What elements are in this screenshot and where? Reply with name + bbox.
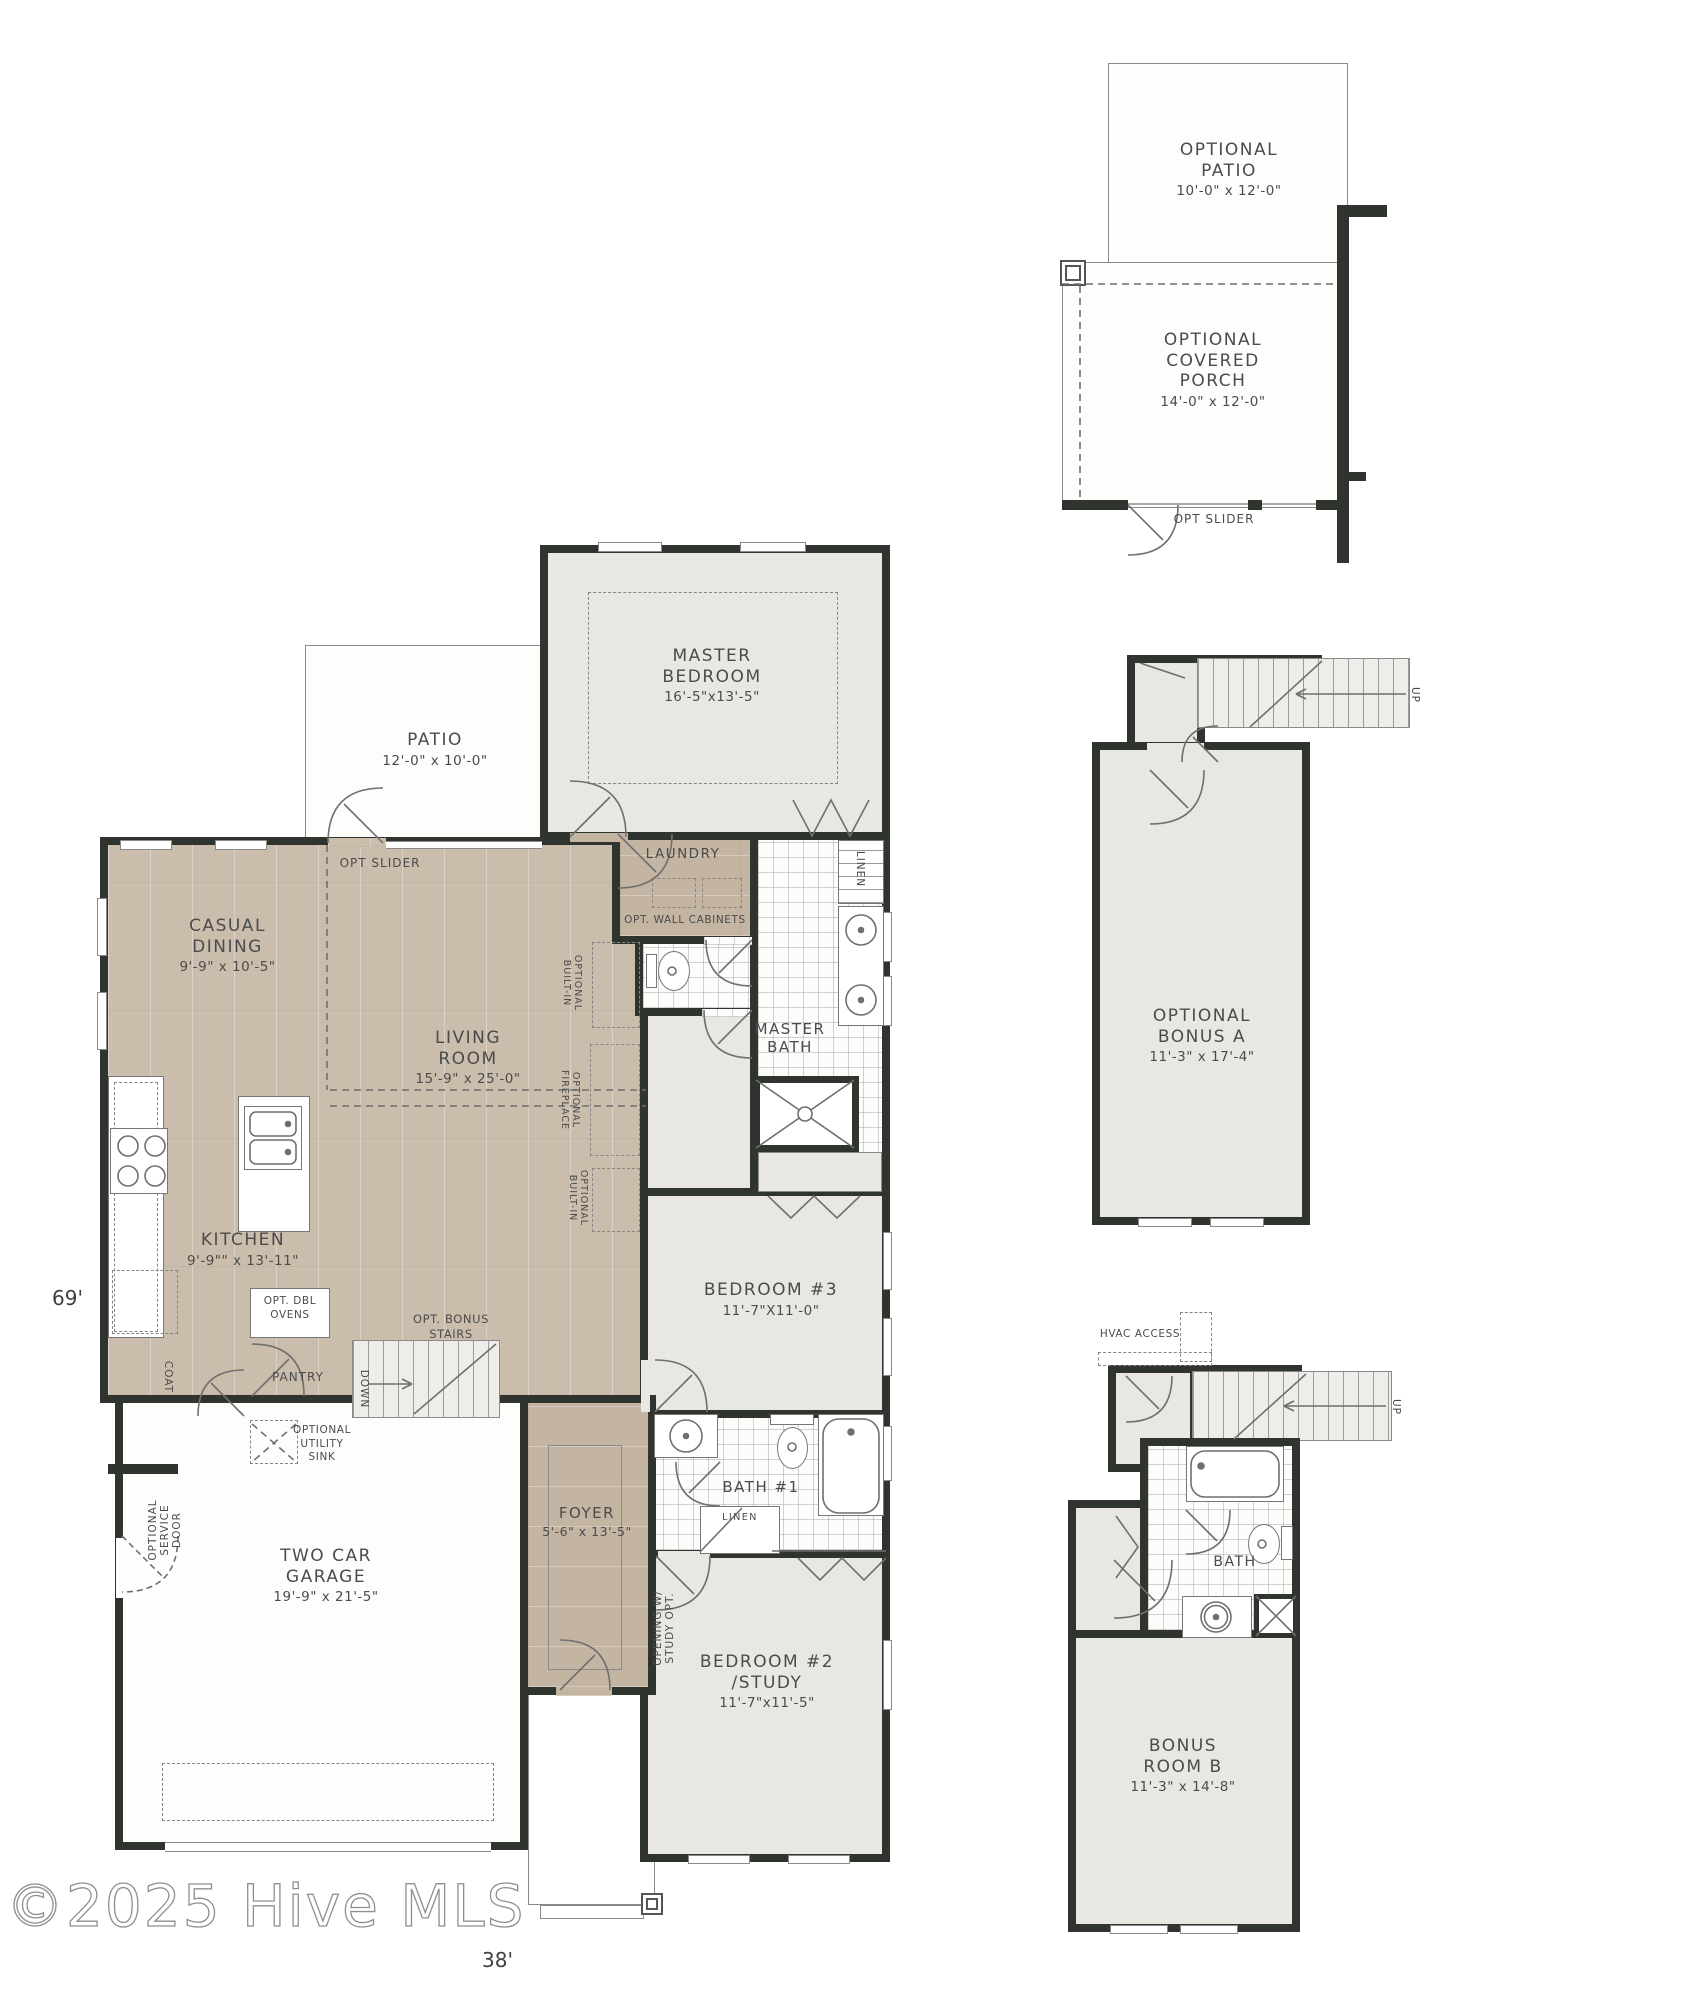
room-label-bonus-bath: BATH — [1192, 1554, 1278, 1571]
toilet-bowl-master — [658, 951, 690, 991]
foyer-inner-outline — [548, 1445, 622, 1670]
bonus-a-landing — [1127, 655, 1205, 750]
label-up-bonus-a: UP — [1409, 680, 1421, 710]
label-pantry: PANTRY — [256, 1370, 340, 1385]
watermark-hive-mls: ©2025 Hive MLS — [6, 1872, 525, 1940]
porch-bottom-wall-c — [1316, 500, 1346, 510]
toilet-tank-bath1 — [770, 1414, 814, 1425]
garage-wall-stub — [108, 1464, 178, 1474]
hvac-dashed-strip — [1098, 1352, 1212, 1366]
room-label-patio: PATIO 12'-0" x 10'-0" — [355, 730, 515, 769]
main-stairs — [352, 1340, 500, 1418]
window — [215, 840, 267, 850]
toilet-tank-bonus — [1281, 1526, 1293, 1560]
room-label-master-bath: MASTER BATH — [742, 1020, 838, 1057]
window — [883, 1232, 892, 1290]
room-label-bonus-b: BONUS ROOM B 11'-3" x 14'-8" — [1092, 1736, 1274, 1796]
front-porch-step — [540, 1905, 644, 1919]
front-porch-post — [641, 1893, 663, 1915]
door-opening — [641, 1360, 650, 1412]
bath1-tub — [818, 1414, 884, 1516]
room-label-bonus-a: OPTIONAL BONUS A 11'-3" x 17'-4" — [1118, 1006, 1286, 1066]
room-label-master-bedroom: MASTER BEDROOM 16'-5"x13'-5" — [627, 646, 797, 706]
door-opening — [556, 1687, 612, 1696]
window — [883, 1640, 892, 1710]
opt-builtin-upper-dashed — [592, 942, 640, 1028]
bonus-b-stairs — [1192, 1371, 1392, 1441]
room-bonus-a — [1092, 742, 1310, 1225]
bonus-vanity — [1182, 1596, 1252, 1638]
toilet-tank-master — [646, 954, 657, 988]
window — [883, 1318, 892, 1376]
window — [740, 542, 806, 552]
utility-sink-dashed — [250, 1420, 298, 1464]
fridge-dashed — [112, 1270, 178, 1334]
window — [598, 542, 662, 552]
room-label-laundry: LAUNDRY — [628, 846, 738, 862]
porch-post — [1060, 260, 1086, 286]
window — [688, 1855, 750, 1864]
label-opt-fireplace: OPTIONAL FIREPLACE — [559, 1069, 581, 1131]
dimension-width: 38' — [482, 1948, 513, 1972]
label-down: DOWN — [358, 1362, 370, 1416]
opt-slider-opening — [386, 841, 542, 849]
porch-bottom-wall-a — [1062, 500, 1128, 510]
garage-door-dashed — [162, 1763, 494, 1821]
label-opt-bonus-stairs: OPT. BONUS STAIRS — [392, 1312, 510, 1342]
garage-door-opening — [165, 1842, 491, 1852]
service-door-opening — [116, 1538, 125, 1598]
label-opt-service-door: OPTIONAL SERVICE DOOR — [147, 1495, 183, 1565]
bath1-vanity — [654, 1414, 718, 1458]
door-opening — [328, 838, 386, 847]
room-label-kitchen: KITCHEN 9'-9"" x 13'-11" — [158, 1230, 328, 1269]
stove — [110, 1128, 168, 1194]
floor-plan-canvas: PATIO 12'-0" x 10'-0" OPT SLIDER MASTER … — [0, 0, 1685, 2000]
room-label-covered-porch: OPTIONAL COVERED PORCH 14'-0" x 12'-0" — [1133, 330, 1293, 411]
opt-cabinet-dashed — [702, 878, 742, 908]
door-opening — [702, 1009, 750, 1017]
window — [1110, 1925, 1168, 1934]
label-opt-slider-porch: OPT SLIDER — [1168, 512, 1260, 527]
door-opening — [1147, 743, 1204, 752]
opt-fireplace-dashed — [590, 1044, 640, 1156]
window — [120, 840, 172, 850]
label-up-bonus-b: UP — [1390, 1392, 1402, 1422]
label-coat: COAT — [162, 1352, 174, 1402]
room-label-casual-dining: CASUAL DINING 9'-9" x 10'-5" — [140, 916, 315, 976]
window — [97, 898, 107, 956]
porch-bottom-wall-b — [1248, 500, 1262, 510]
master-shower — [753, 1076, 859, 1152]
window — [883, 976, 892, 1026]
window — [1210, 1218, 1264, 1227]
window — [97, 992, 107, 1050]
label-opt-builtin-lower: OPTIONAL BUILT-IN — [567, 1167, 589, 1229]
room-label-bedroom2: BEDROOM #2 /STUDY 11'-7"x11'-5" — [672, 1652, 862, 1712]
window — [883, 912, 892, 962]
label-opt-wall-cabinets: OPT. WALL CABINETS — [618, 914, 752, 928]
label-opt-utility-sink: OPTIONAL UTILITY SINK — [292, 1424, 352, 1465]
room-label-living-room: LIVING ROOM 15'-9" x 25'-0" — [378, 1028, 558, 1088]
room-label-garage: TWO CAR GARAGE 19'-9" x 21'-5" — [228, 1546, 424, 1606]
master-closet-strip — [758, 1152, 882, 1192]
porch-right-wall-tick — [1349, 472, 1366, 481]
dimension-depth: 69' — [52, 1286, 83, 1310]
label-opt-slider-main: OPT SLIDER — [330, 856, 430, 871]
room-label-bedroom3: BEDROOM #3 11'-7"X11'-0" — [678, 1280, 864, 1319]
bonus-a-stairs — [1197, 658, 1410, 728]
room-label-bath1: BATH #1 — [702, 1478, 820, 1496]
toilet-bowl-bath1 — [777, 1427, 808, 1469]
front-porch-outline — [528, 1695, 655, 1905]
room-label-foyer: FOYER 5'-6" x 13'-5" — [528, 1504, 646, 1540]
master-vanity — [838, 906, 884, 1026]
bonus-tub — [1186, 1446, 1284, 1502]
label-linen-master: LINEN — [854, 844, 866, 894]
door-opening — [704, 937, 752, 945]
door-opening — [570, 833, 628, 842]
window — [1138, 1218, 1192, 1227]
window — [1180, 1925, 1238, 1934]
window — [788, 1855, 850, 1864]
room-hall — [640, 1008, 758, 1196]
label-opt-builtin-upper: OPTIONAL BUILT-IN — [561, 952, 583, 1014]
porch-right-wall-stub — [1337, 205, 1387, 217]
bonus-shower — [1254, 1594, 1298, 1638]
opt-builtin-lower-dashed — [592, 1168, 640, 1232]
label-opt-dbl-ovens: OPT. DBL OVENS — [252, 1295, 328, 1322]
label-hvac-access: HVAC ACCESS — [1088, 1328, 1192, 1342]
label-linen-bath1: LINEN — [702, 1512, 778, 1524]
room-label-optional-patio: OPTIONAL PATIO 10'-0" x 12'-0" — [1148, 140, 1310, 200]
opt-cabinet-dashed — [652, 878, 696, 908]
window — [883, 1426, 892, 1481]
island-sink — [244, 1106, 302, 1170]
